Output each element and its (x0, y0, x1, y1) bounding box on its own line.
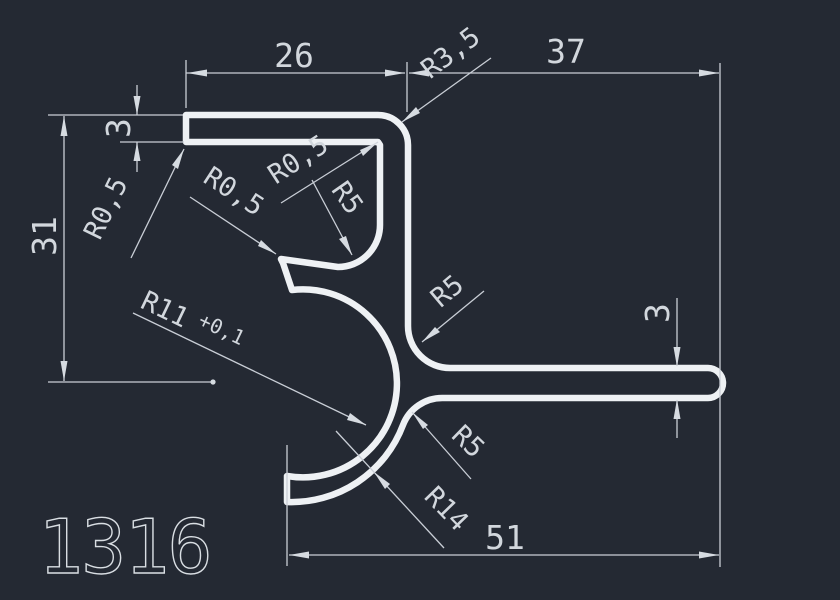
arrowhead (674, 399, 681, 419)
dim-3l-value: 3 (99, 118, 138, 138)
leader-r5-inner: R5 (312, 176, 369, 255)
leader-line (133, 313, 366, 425)
arrowhead (289, 552, 309, 559)
arrowhead (339, 236, 352, 255)
leader-r5-stem: R5 (422, 269, 484, 342)
arrowhead (385, 70, 405, 77)
arrowhead (699, 552, 719, 559)
arrowhead (699, 70, 719, 77)
arrowhead (412, 412, 428, 429)
cad-canvas: 26 37 31 3 3 51 R3,5 (0, 0, 840, 600)
label-r0-5-mid: R0,5 (198, 161, 269, 222)
leader-r11: R11 +0,1 (133, 282, 366, 425)
leader-r5-bottom: R5 (412, 412, 490, 479)
label-r0-5-left: R0,5 (78, 172, 134, 244)
dim-3r-value: 3 (638, 303, 677, 323)
dim-37-value: 37 (546, 32, 586, 71)
dim-3-left: 3 (99, 85, 141, 172)
dim-51: 51 (289, 518, 719, 559)
arrowhead (258, 240, 276, 254)
cad-viewport: 26 37 31 3 3 51 R3,5 (0, 0, 840, 600)
label-r5-stem: R5 (425, 269, 470, 314)
arrowhead (347, 413, 366, 425)
part-number: 1316 (38, 503, 211, 591)
leader-r3-5: R3,5 (402, 21, 491, 122)
leader-r0-5-left: R0,5 (78, 149, 184, 258)
arrowhead (61, 361, 68, 381)
arrowhead (172, 149, 184, 169)
dim-31-value: 31 (25, 216, 64, 256)
arrowhead (674, 347, 681, 367)
label-r11: R11 (136, 285, 193, 334)
label-r0-5-top: R0,5 (263, 129, 334, 190)
dim-31: 31 (25, 116, 68, 381)
arc-center-dot (210, 379, 215, 384)
label-r5-inner: R5 (325, 176, 369, 220)
dim-51-value: 51 (485, 518, 525, 557)
arrowhead (134, 96, 141, 115)
arrowhead (402, 107, 420, 122)
dim-26-value: 26 (274, 36, 314, 75)
dim-26: 26 (186, 36, 405, 77)
arrowhead (134, 142, 141, 161)
arrowhead (61, 116, 68, 136)
label-r3-5: R3,5 (416, 21, 487, 85)
label-r11-tolerance: +0,1 (195, 308, 249, 350)
leader-r0-5-mid: R0,5 (190, 161, 276, 254)
arrowhead (187, 70, 207, 77)
